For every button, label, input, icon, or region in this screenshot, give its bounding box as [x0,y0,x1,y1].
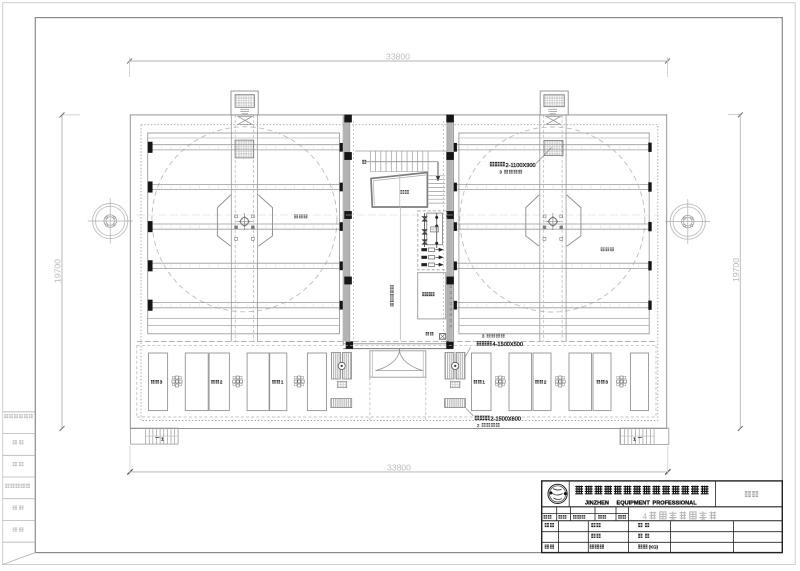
svg-text:4-1500X500: 4-1500X500 [493,342,523,348]
svg-text:EQUIPMENT: EQUIPMENT [617,501,651,507]
svg-text:1: 1 [281,380,284,385]
svg-text:33800: 33800 [386,52,410,62]
svg-text:19700: 19700 [52,259,62,283]
svg-text:19700: 19700 [731,258,741,282]
svg-text:2-1500X600: 2-1500X600 [491,417,521,423]
svg-text:JINZHEN: JINZHEN [585,501,609,507]
svg-text:1: 1 [161,437,164,443]
svg-text:1: 1 [633,437,636,443]
svg-text:2: 2 [220,380,223,385]
svg-text:PROFESSIONAL: PROFESSIONAL [653,501,698,507]
svg-text:2: 2 [544,380,547,385]
svg-text:4: 4 [643,511,648,521]
svg-text:3: 3 [160,380,163,385]
svg-text:3: 3 [605,380,608,385]
svg-text:(KG): (KG) [649,545,659,550]
svg-text:1: 1 [482,380,485,385]
svg-text:33800: 33800 [387,462,411,472]
svg-text:2-1100X900: 2-1100X900 [506,163,536,169]
